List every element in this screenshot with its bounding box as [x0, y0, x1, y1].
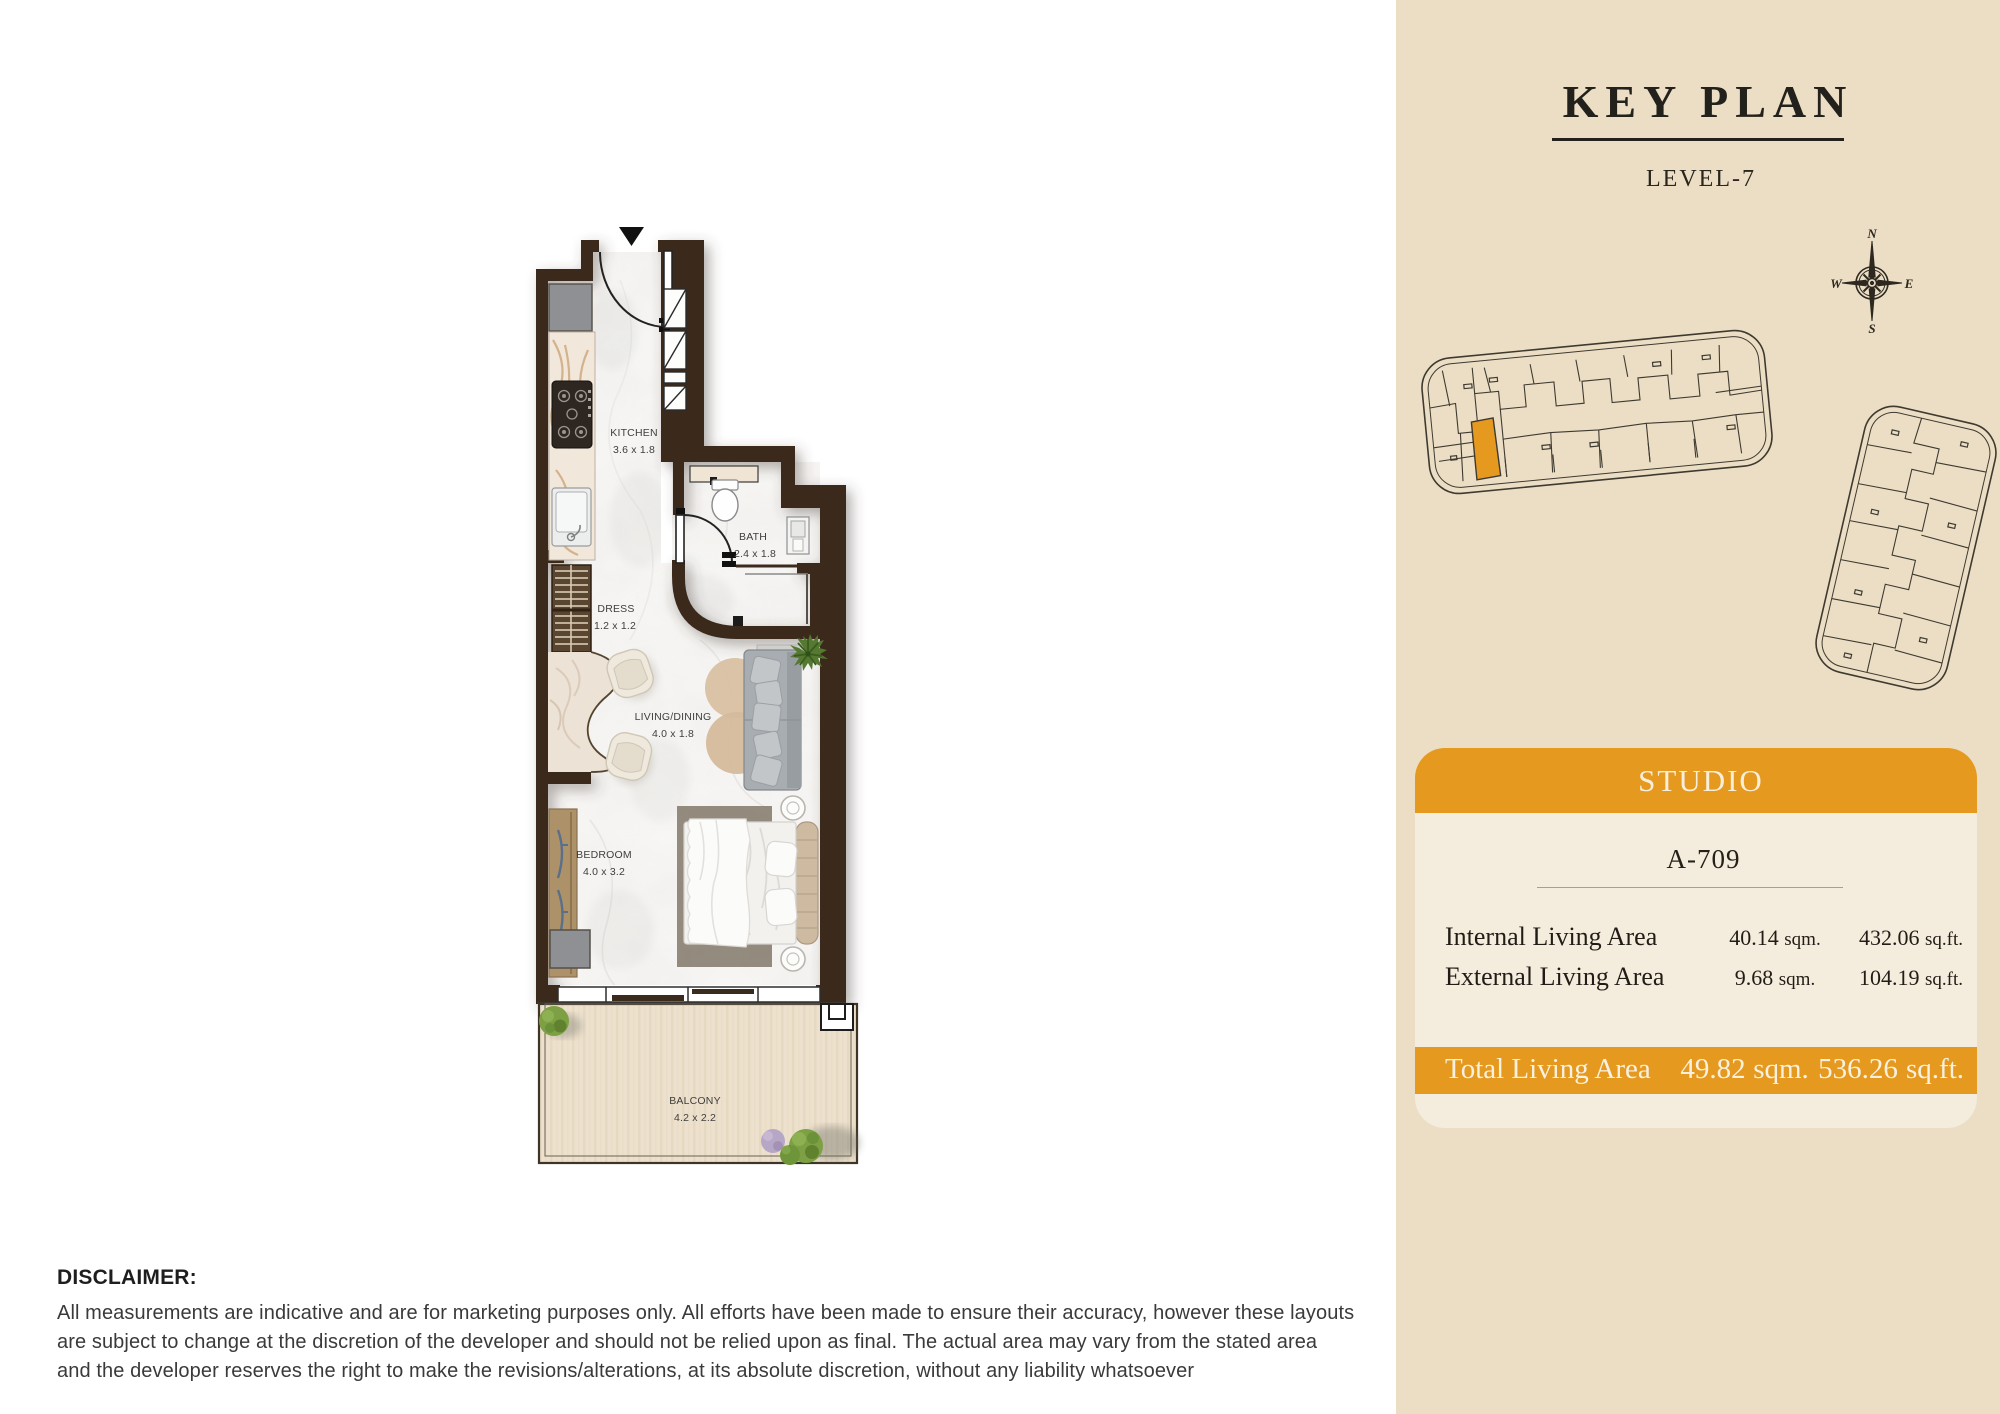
svg-text:S: S [1868, 321, 1875, 336]
svg-text:N: N [1866, 226, 1877, 241]
svg-text:4.2 x 2.2: 4.2 x 2.2 [674, 1112, 716, 1124]
svg-text:BATH: BATH [739, 531, 767, 543]
svg-text:4.0 x 3.2: 4.0 x 3.2 [583, 866, 625, 878]
svg-text:1.2 x 1.2: 1.2 x 1.2 [594, 620, 636, 632]
svg-text:DRESS: DRESS [597, 603, 634, 615]
svg-text:W: W [1830, 276, 1843, 291]
svg-text:4.0 x 1.8: 4.0 x 1.8 [652, 728, 694, 740]
svg-text:E: E [1904, 276, 1914, 291]
svg-text:2.4 x 1.8: 2.4 x 1.8 [734, 548, 776, 560]
svg-text:3.6 x 1.8: 3.6 x 1.8 [613, 444, 655, 456]
svg-text:BEDROOM: BEDROOM [576, 849, 632, 861]
svg-text:KITCHEN: KITCHEN [610, 427, 658, 439]
svg-text:BALCONY: BALCONY [669, 1095, 721, 1107]
svg-text:LIVING/DINING: LIVING/DINING [635, 711, 712, 723]
